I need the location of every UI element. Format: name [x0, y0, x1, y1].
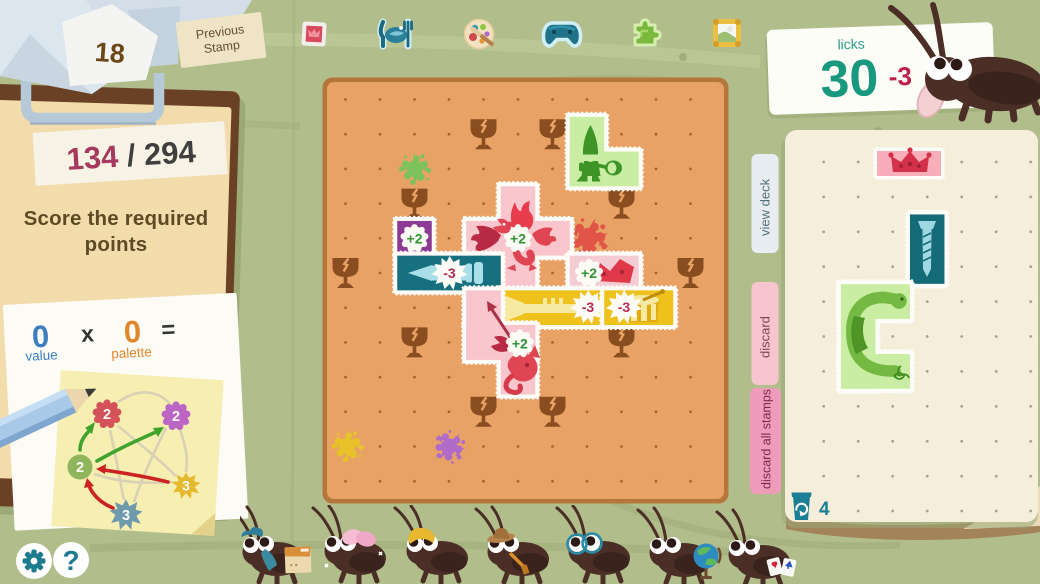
svg-text:2: 2	[76, 460, 84, 476]
svg-text:+2: +2	[510, 230, 526, 246]
svg-text:palette: palette	[111, 344, 152, 361]
svg-text:-3: -3	[582, 299, 595, 315]
svg-text:discard: discard	[758, 316, 773, 358]
svg-text:-3: -3	[888, 61, 912, 92]
svg-text:=: =	[161, 316, 176, 344]
svg-text:discard all stamps: discard all stamps	[760, 389, 774, 489]
svg-text:3: 3	[182, 478, 190, 494]
svg-text:2: 2	[103, 407, 111, 423]
svg-text:3: 3	[122, 508, 130, 524]
svg-text:2: 2	[172, 409, 180, 425]
svg-text:+2: +2	[581, 265, 597, 281]
svg-text:Score the required: Score the required	[24, 207, 209, 230]
svg-text:?: ?	[62, 545, 79, 576]
svg-text:+2: +2	[407, 230, 423, 246]
svg-text:-3: -3	[618, 299, 631, 315]
svg-text:30: 30	[819, 49, 879, 109]
svg-text:view deck: view deck	[758, 178, 773, 236]
svg-text:value: value	[25, 347, 58, 364]
svg-text:18: 18	[94, 37, 126, 69]
svg-text:points: points	[85, 233, 148, 256]
svg-text:4: 4	[819, 499, 830, 520]
svg-text:x: x	[80, 320, 94, 347]
svg-text:-3: -3	[443, 265, 456, 281]
svg-text:+2: +2	[512, 336, 528, 352]
